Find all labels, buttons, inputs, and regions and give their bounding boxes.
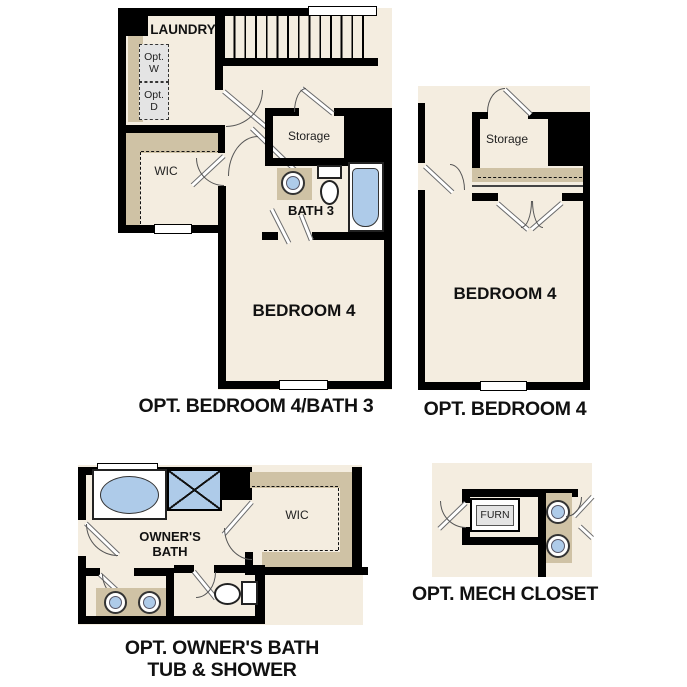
furnace-label: FURN bbox=[476, 505, 514, 526]
room-label-wic: WIC bbox=[265, 509, 329, 523]
bathtub bbox=[352, 168, 379, 227]
sink bbox=[138, 591, 161, 614]
window bbox=[480, 381, 527, 391]
plan-caption: OPT. BEDROOM 4 bbox=[415, 399, 595, 420]
closet-shelf bbox=[126, 133, 220, 153]
wall bbox=[78, 467, 86, 520]
room-label-storage: Storage bbox=[475, 133, 539, 147]
shelf-dashed-line bbox=[140, 152, 141, 224]
shelf-dashed-line bbox=[252, 486, 338, 487]
wall bbox=[145, 8, 312, 16]
room-label-bath3: BATH 3 bbox=[279, 204, 343, 219]
window bbox=[279, 380, 328, 390]
wall bbox=[462, 537, 538, 545]
staircase bbox=[223, 16, 373, 58]
room-label-storage: Storage bbox=[277, 130, 341, 144]
sink bbox=[104, 591, 127, 614]
room-label-wic: WIC bbox=[134, 165, 198, 179]
toilet-bowl bbox=[214, 583, 241, 605]
washer-box: Opt. W bbox=[139, 44, 169, 82]
room-label-laundry: LAUNDRY bbox=[142, 22, 224, 38]
wall bbox=[78, 616, 265, 624]
closet-rod bbox=[472, 185, 588, 187]
wall bbox=[78, 556, 86, 624]
plan-caption: OPT. MECH CLOSET bbox=[398, 584, 612, 605]
wall bbox=[262, 232, 278, 240]
toilet-tank bbox=[241, 581, 258, 605]
shelf-dashed-line bbox=[338, 488, 339, 550]
wall bbox=[215, 58, 378, 66]
wall bbox=[215, 66, 223, 90]
room-label-bedroom4: BEDROOM 4 bbox=[424, 284, 586, 304]
furnace: FURN bbox=[470, 498, 520, 532]
dryer-box: Opt. D bbox=[139, 82, 169, 120]
wall bbox=[166, 568, 174, 616]
closet-shelf bbox=[262, 552, 352, 567]
plan-caption: OPT. BEDROOM 4/BATH 3 bbox=[116, 396, 396, 417]
shelf-dashed-line bbox=[141, 151, 220, 152]
wall bbox=[118, 8, 126, 233]
closet-shelf bbox=[126, 133, 140, 225]
window bbox=[154, 224, 192, 234]
shelf-dashed-line bbox=[264, 550, 338, 551]
wall bbox=[218, 186, 226, 389]
shelf-dashed-line bbox=[478, 177, 582, 178]
room-label-bedroom4: BEDROOM 4 bbox=[223, 301, 385, 321]
room-label-owners-bath: OWNER'S BATH bbox=[134, 530, 206, 560]
wall bbox=[312, 232, 392, 240]
wall bbox=[418, 103, 425, 163]
toilet-tank bbox=[317, 165, 342, 179]
sink bbox=[546, 534, 570, 558]
shower bbox=[167, 469, 222, 511]
wall bbox=[218, 125, 225, 153]
plan-caption-line1: OPT. OWNER'S BATH bbox=[92, 638, 352, 659]
wall bbox=[352, 467, 362, 575]
wall bbox=[472, 112, 488, 119]
wall bbox=[384, 110, 392, 389]
wall bbox=[118, 125, 225, 133]
closet-shelf bbox=[472, 168, 588, 182]
stairwell-opening bbox=[308, 6, 377, 16]
sink bbox=[281, 171, 305, 195]
wall bbox=[174, 565, 194, 573]
wall bbox=[538, 489, 546, 577]
wall bbox=[222, 470, 252, 500]
floorplan-sheet: Opt. W Opt. D LAUNDRY WIC Storage bbox=[0, 0, 687, 687]
wall bbox=[583, 112, 590, 390]
wall bbox=[472, 193, 498, 201]
plan-caption-line2: TUB & SHOWER bbox=[92, 660, 352, 681]
bathtub bbox=[100, 476, 159, 514]
